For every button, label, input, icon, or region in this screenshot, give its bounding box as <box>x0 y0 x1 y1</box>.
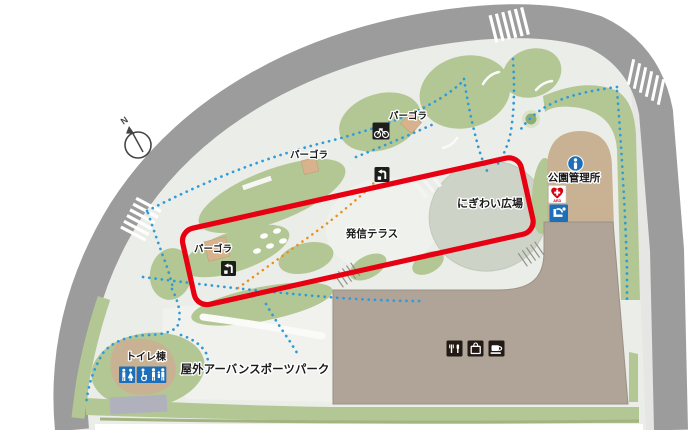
pergola-label-low: パーゴラ <box>194 243 232 255</box>
gray-block <box>110 394 168 414</box>
compass: N <box>119 115 151 158</box>
aed-icon: AED <box>549 186 567 204</box>
park-office-label: 公園管理所 <box>548 171 601 184</box>
bottom-white-strip <box>95 424 643 430</box>
urban-sports-park-label: 屋外アーバンスポーツパーク <box>181 362 330 376</box>
stairs-icon <box>375 167 390 182</box>
restaurant-icon <box>447 341 463 357</box>
drinking-fountain-icon <box>550 205 569 223</box>
nigiwai-plaza-label: にぎわい広場 <box>457 196 523 210</box>
shop-icon <box>468 341 484 357</box>
stairs-icon <box>221 261 236 276</box>
pergola-label-mid: パーゴラ <box>290 149 328 161</box>
pergola-label-top: パーゴラ <box>389 110 427 122</box>
park-map: N <box>0 0 700 430</box>
compass-n-label: N <box>119 115 130 127</box>
toilet-building-label: トイレ棟 <box>126 350 167 363</box>
aed-label: AED <box>553 199 561 203</box>
accessible-family-icon <box>137 367 167 384</box>
compass-arrow-icon <box>126 126 135 134</box>
toilet-icon <box>119 367 135 384</box>
info-icon <box>568 156 584 172</box>
cafe-icon <box>489 341 505 357</box>
hasshin-terrace-label: 発信テラス <box>345 227 398 240</box>
bicycle-icon <box>373 123 390 140</box>
